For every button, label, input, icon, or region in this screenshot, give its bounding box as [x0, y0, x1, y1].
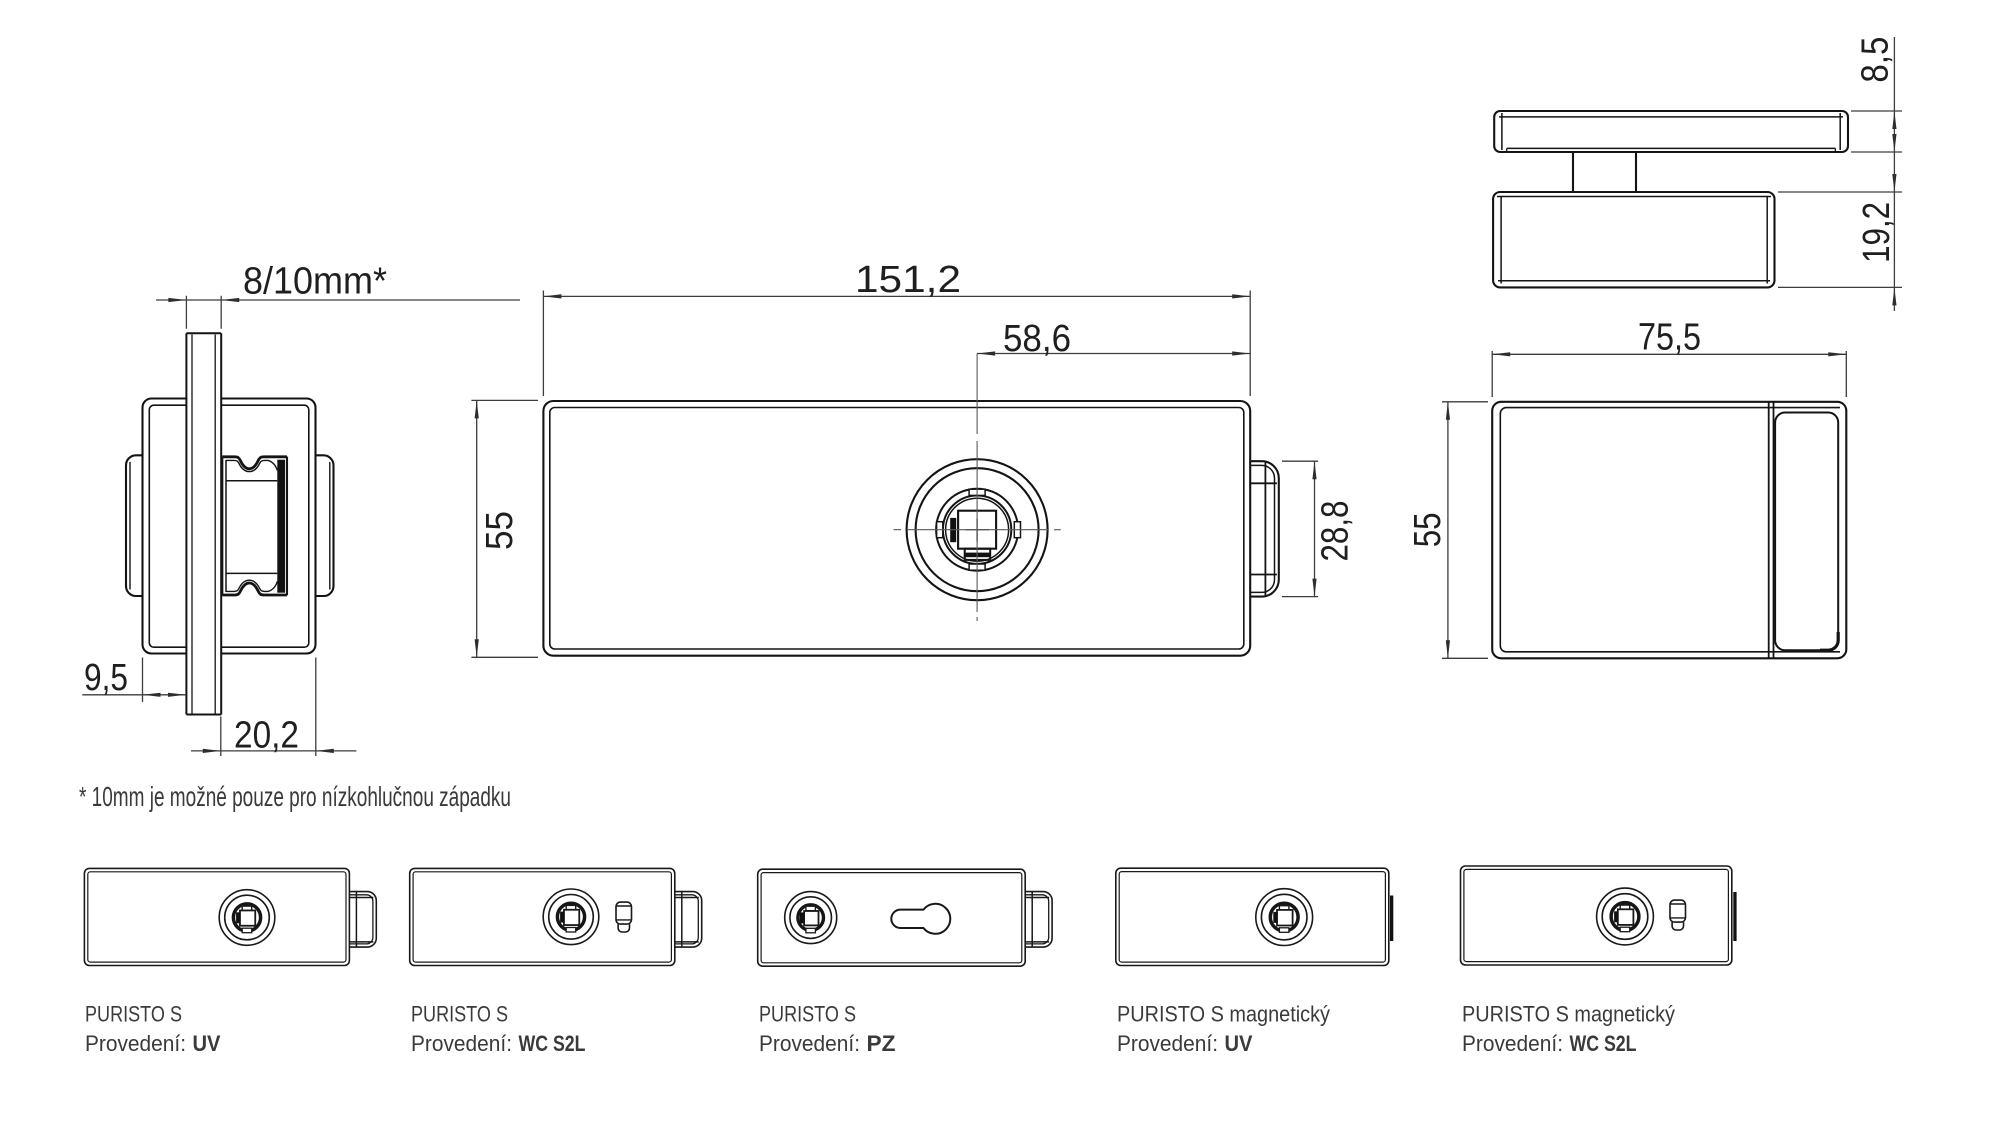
svg-text:UV: UV: [1225, 1031, 1253, 1056]
svg-text:PZ: PZ: [867, 1031, 896, 1056]
svg-text:55: 55: [1407, 512, 1449, 547]
svg-text:PURISTO S magnetický: PURISTO S magnetický: [1462, 1002, 1676, 1027]
svg-text:* 10mm je možné pouze pro nízk: * 10mm je možné pouze pro nízkohlučnou z…: [79, 781, 511, 812]
svg-text:28,8: 28,8: [1315, 501, 1357, 562]
svg-text:Provedení:: Provedení:: [1117, 1031, 1218, 1056]
svg-text:58,6: 58,6: [1003, 318, 1071, 360]
svg-text:75,5: 75,5: [1638, 317, 1701, 359]
svg-text:151,2: 151,2: [855, 259, 961, 301]
svg-text:20,2: 20,2: [234, 715, 299, 757]
svg-text:UV: UV: [193, 1031, 221, 1056]
svg-text:WC S2L: WC S2L: [1570, 1031, 1637, 1056]
svg-text:PURISTO S: PURISTO S: [85, 1002, 182, 1027]
svg-text:Provedení:: Provedení:: [411, 1031, 512, 1056]
svg-text:Provedení:: Provedení:: [759, 1031, 860, 1056]
svg-text:9,5: 9,5: [84, 657, 128, 699]
svg-text:PURISTO S: PURISTO S: [759, 1002, 856, 1027]
svg-text:19,2: 19,2: [1856, 202, 1898, 263]
svg-text:8,5: 8,5: [1855, 37, 1897, 83]
svg-text:Provedení:: Provedení:: [85, 1031, 186, 1056]
svg-text:8/10mm*: 8/10mm*: [243, 261, 387, 303]
svg-text:Provedení:: Provedení:: [1462, 1031, 1563, 1056]
svg-text:PURISTO S: PURISTO S: [411, 1002, 508, 1027]
svg-text:55: 55: [479, 511, 521, 550]
svg-text:WC S2L: WC S2L: [519, 1031, 586, 1056]
svg-text:PURISTO S magnetický: PURISTO S magnetický: [1117, 1002, 1331, 1027]
